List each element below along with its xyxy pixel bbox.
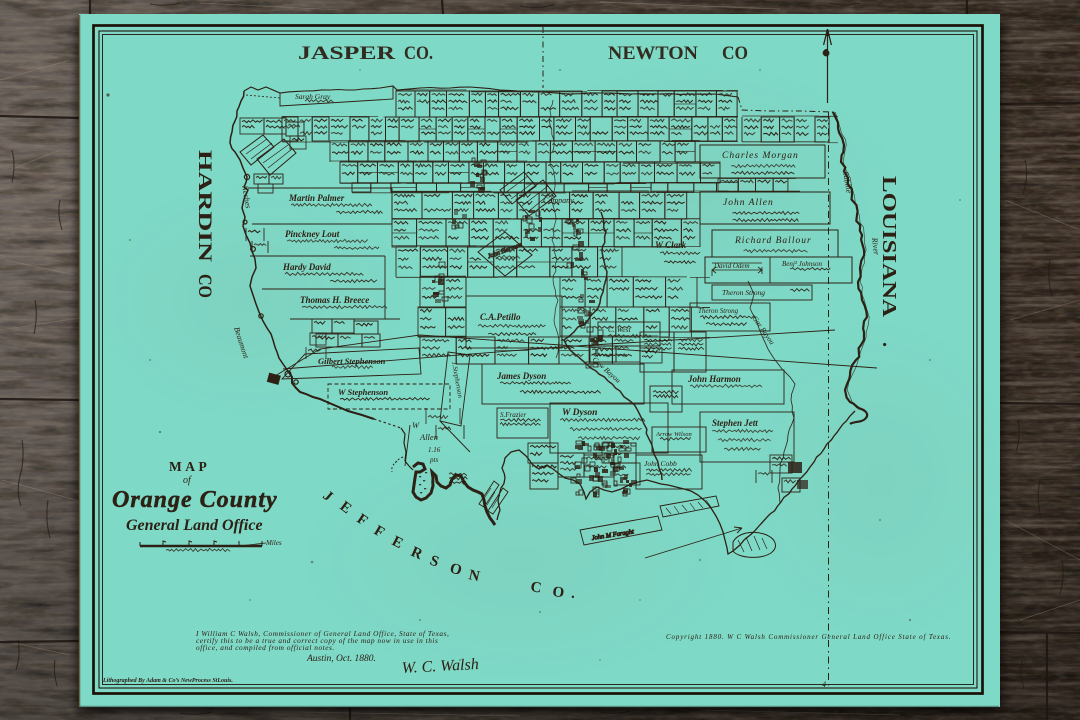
svg-text:Allen: Allen bbox=[419, 432, 438, 442]
svg-text:Lithographed By Adam & Co’s Ne: Lithographed By Adam & Co’s NewProcess S… bbox=[102, 678, 233, 684]
svg-text:W⁯ Stephenson: W⁯ Stephenson bbox=[338, 387, 388, 397]
svg-text:J.Stephenson: J.Stephenson bbox=[450, 361, 464, 399]
svg-text:pts: pts bbox=[429, 456, 438, 464]
svg-text:HARDIN: HARDIN bbox=[194, 150, 215, 262]
svg-text:Thomas H. Breece: Thomas H. Breece bbox=[300, 295, 369, 305]
svg-text:CO: CO bbox=[722, 43, 748, 64]
svg-text:Arrow Wilson: Arrow Wilson bbox=[655, 431, 692, 438]
svg-text:CO: CO bbox=[194, 274, 215, 298]
svg-text:JASPER: JASPER bbox=[298, 43, 395, 64]
svg-text:LOUISIANA: LOUISIANA bbox=[878, 176, 900, 318]
svg-text:W⁯ Clark: W⁯ Clark bbox=[655, 240, 687, 250]
svg-text:.: . bbox=[878, 342, 900, 347]
svg-text:John Harmon: John Harmon bbox=[687, 374, 741, 384]
svg-text:Benj² Johnson: Benj² Johnson bbox=[782, 260, 823, 268]
svg-text:office, and compiled from offi: office, and compiled from official notes… bbox=[196, 643, 335, 652]
svg-text:S.Frazier: S.Frazier bbox=[500, 411, 527, 419]
svg-text:.: . bbox=[571, 586, 575, 602]
svg-text:John Cobb: John Cobb bbox=[644, 459, 677, 468]
svg-text:1.16: 1.16 bbox=[428, 446, 441, 454]
svg-text:4: 4 bbox=[822, 680, 826, 689]
svg-text:W⁯: W⁯ bbox=[412, 420, 420, 430]
svg-text:Theron Strong: Theron Strong bbox=[698, 307, 739, 315]
svg-text:Richard Ballour: Richard Ballour bbox=[734, 236, 812, 246]
svg-text:W⁯ Dyson: W⁯ Dyson bbox=[562, 408, 597, 418]
svg-text:Company: Company bbox=[543, 196, 574, 205]
svg-text:Pinckney Lout: Pinckney Lout bbox=[285, 229, 340, 239]
svg-text:C.A.Petillo: C.A.Petillo bbox=[480, 312, 521, 322]
svg-text:Gar Bayou: Gar Bayou bbox=[750, 314, 777, 346]
svg-text:David Odem: David Odem bbox=[713, 262, 750, 270]
svg-text:John Allen: John Allen bbox=[723, 198, 774, 208]
svg-text:Austin, Oct. 1880.: Austin, Oct. 1880. bbox=[306, 654, 376, 664]
svg-text:NEWTON: NEWTON bbox=[608, 43, 698, 64]
svg-text:C. West: C. West bbox=[608, 325, 632, 334]
svg-text:Gilbert Stephenson: Gilbert Stephenson bbox=[318, 356, 386, 366]
svg-text:of: of bbox=[183, 475, 192, 486]
svg-text:James Dyson: James Dyson bbox=[496, 371, 546, 381]
svg-text:Orange County: Orange County bbox=[112, 487, 278, 513]
svg-text:Copyright 1880. W⁯ C Walsh C: Copyright 1880. W⁯ C Walsh Commissioner … bbox=[666, 633, 951, 641]
svg-text:Martin Palmer: Martin Palmer bbox=[288, 193, 345, 203]
svg-text:Miles: Miles bbox=[265, 539, 282, 547]
svg-text:Theron Strong: Theron Strong bbox=[722, 288, 765, 297]
svg-text:Stephen Jett: Stephen Jett bbox=[712, 418, 758, 428]
svg-text:O: O bbox=[552, 584, 566, 601]
svg-text:Charles Morgan: Charles Morgan bbox=[722, 151, 799, 161]
svg-text:MAP: MAP bbox=[169, 459, 210, 474]
svg-text:General Land Office: General Land Office bbox=[126, 517, 263, 534]
svg-text:CO.: CO. bbox=[404, 43, 433, 64]
svg-text:Hardy David: Hardy David bbox=[282, 262, 331, 272]
